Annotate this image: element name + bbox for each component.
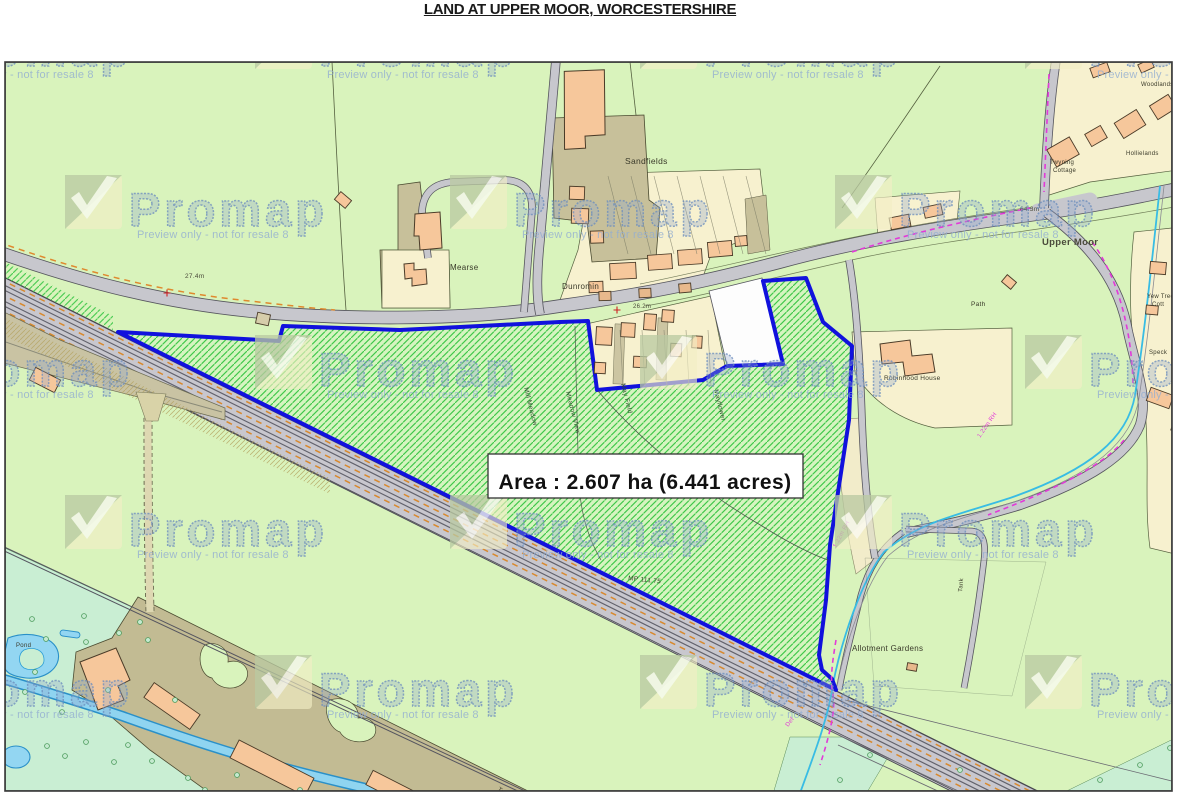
svg-text:Preview only - not for resale: Preview only - not for resale 8 <box>327 709 479 721</box>
svg-text:Preview only - not for resale: Preview only - not for resale 8 <box>137 549 289 561</box>
svg-text:Preview only - not for resale: Preview only - not for resale 8 <box>327 389 479 401</box>
svg-text:Allotment Gardens: Allotment Gardens <box>852 644 923 653</box>
svg-text:Twyning: Twyning <box>1050 160 1074 166</box>
svg-text:Preview only - not for resale: Preview only - not for resale 8 <box>1097 69 1200 81</box>
svg-text:Preview only - not for resale: Preview only - not for resale 8 <box>137 229 289 241</box>
svg-text:Woodlands: Woodlands <box>1141 82 1174 88</box>
svg-text:27.4m: 27.4m <box>185 273 205 280</box>
svg-text:Preview only - not for resale: Preview only - not for resale 8 <box>907 229 1059 241</box>
svg-text:Cottage: Cottage <box>1053 168 1076 174</box>
svg-text:Preview only - not for resale: Preview only - not for resale 8 <box>0 709 94 721</box>
svg-text:Preview only - not for resale: Preview only - not for resale 8 <box>522 549 674 561</box>
svg-text:Preview only - not for resale: Preview only - not for resale 8 <box>327 69 479 81</box>
svg-text:Preview only - not for resale: Preview only - not for resale 8 <box>712 69 864 81</box>
svg-text:Yew Tree: Yew Tree <box>1147 294 1175 300</box>
svg-text:Preview only - not for resale: Preview only - not for resale 8 <box>712 709 864 721</box>
svg-text:Preview only - not for resale: Preview only - not for resale 8 <box>907 549 1059 561</box>
svg-text:Preview only - not for resale: Preview only - not for resale 8 <box>0 389 94 401</box>
svg-text:26.2m: 26.2m <box>633 304 651 310</box>
svg-text:Preview only - not for resale: Preview only - not for resale 8 <box>522 229 674 241</box>
svg-text:Preview only - not for resale: Preview only - not for resale 8 <box>712 389 864 401</box>
svg-text:Preview only - not for resale: Preview only - not for resale 8 <box>1097 709 1200 721</box>
svg-text:Path: Path <box>971 301 986 308</box>
svg-text:Cott: Cott <box>1152 302 1164 308</box>
svg-text:Dunromin: Dunromin <box>562 282 599 291</box>
svg-text:Area : 2.607 ha (6.441 acres): Area : 2.607 ha (6.441 acres) <box>499 471 792 494</box>
svg-text:Sandfields: Sandfields <box>625 156 668 166</box>
svg-text:Hollielands: Hollielands <box>1126 151 1159 157</box>
svg-text:Pond: Pond <box>16 643 31 649</box>
svg-text:Tank: Tank <box>958 577 965 592</box>
svg-text:Preview only - not for resale: Preview only - not for resale 8 <box>1097 389 1200 401</box>
svg-text:Preview only - not for resale: Preview only - not for resale 8 <box>0 69 94 81</box>
svg-text:Mearse: Mearse <box>450 263 479 272</box>
